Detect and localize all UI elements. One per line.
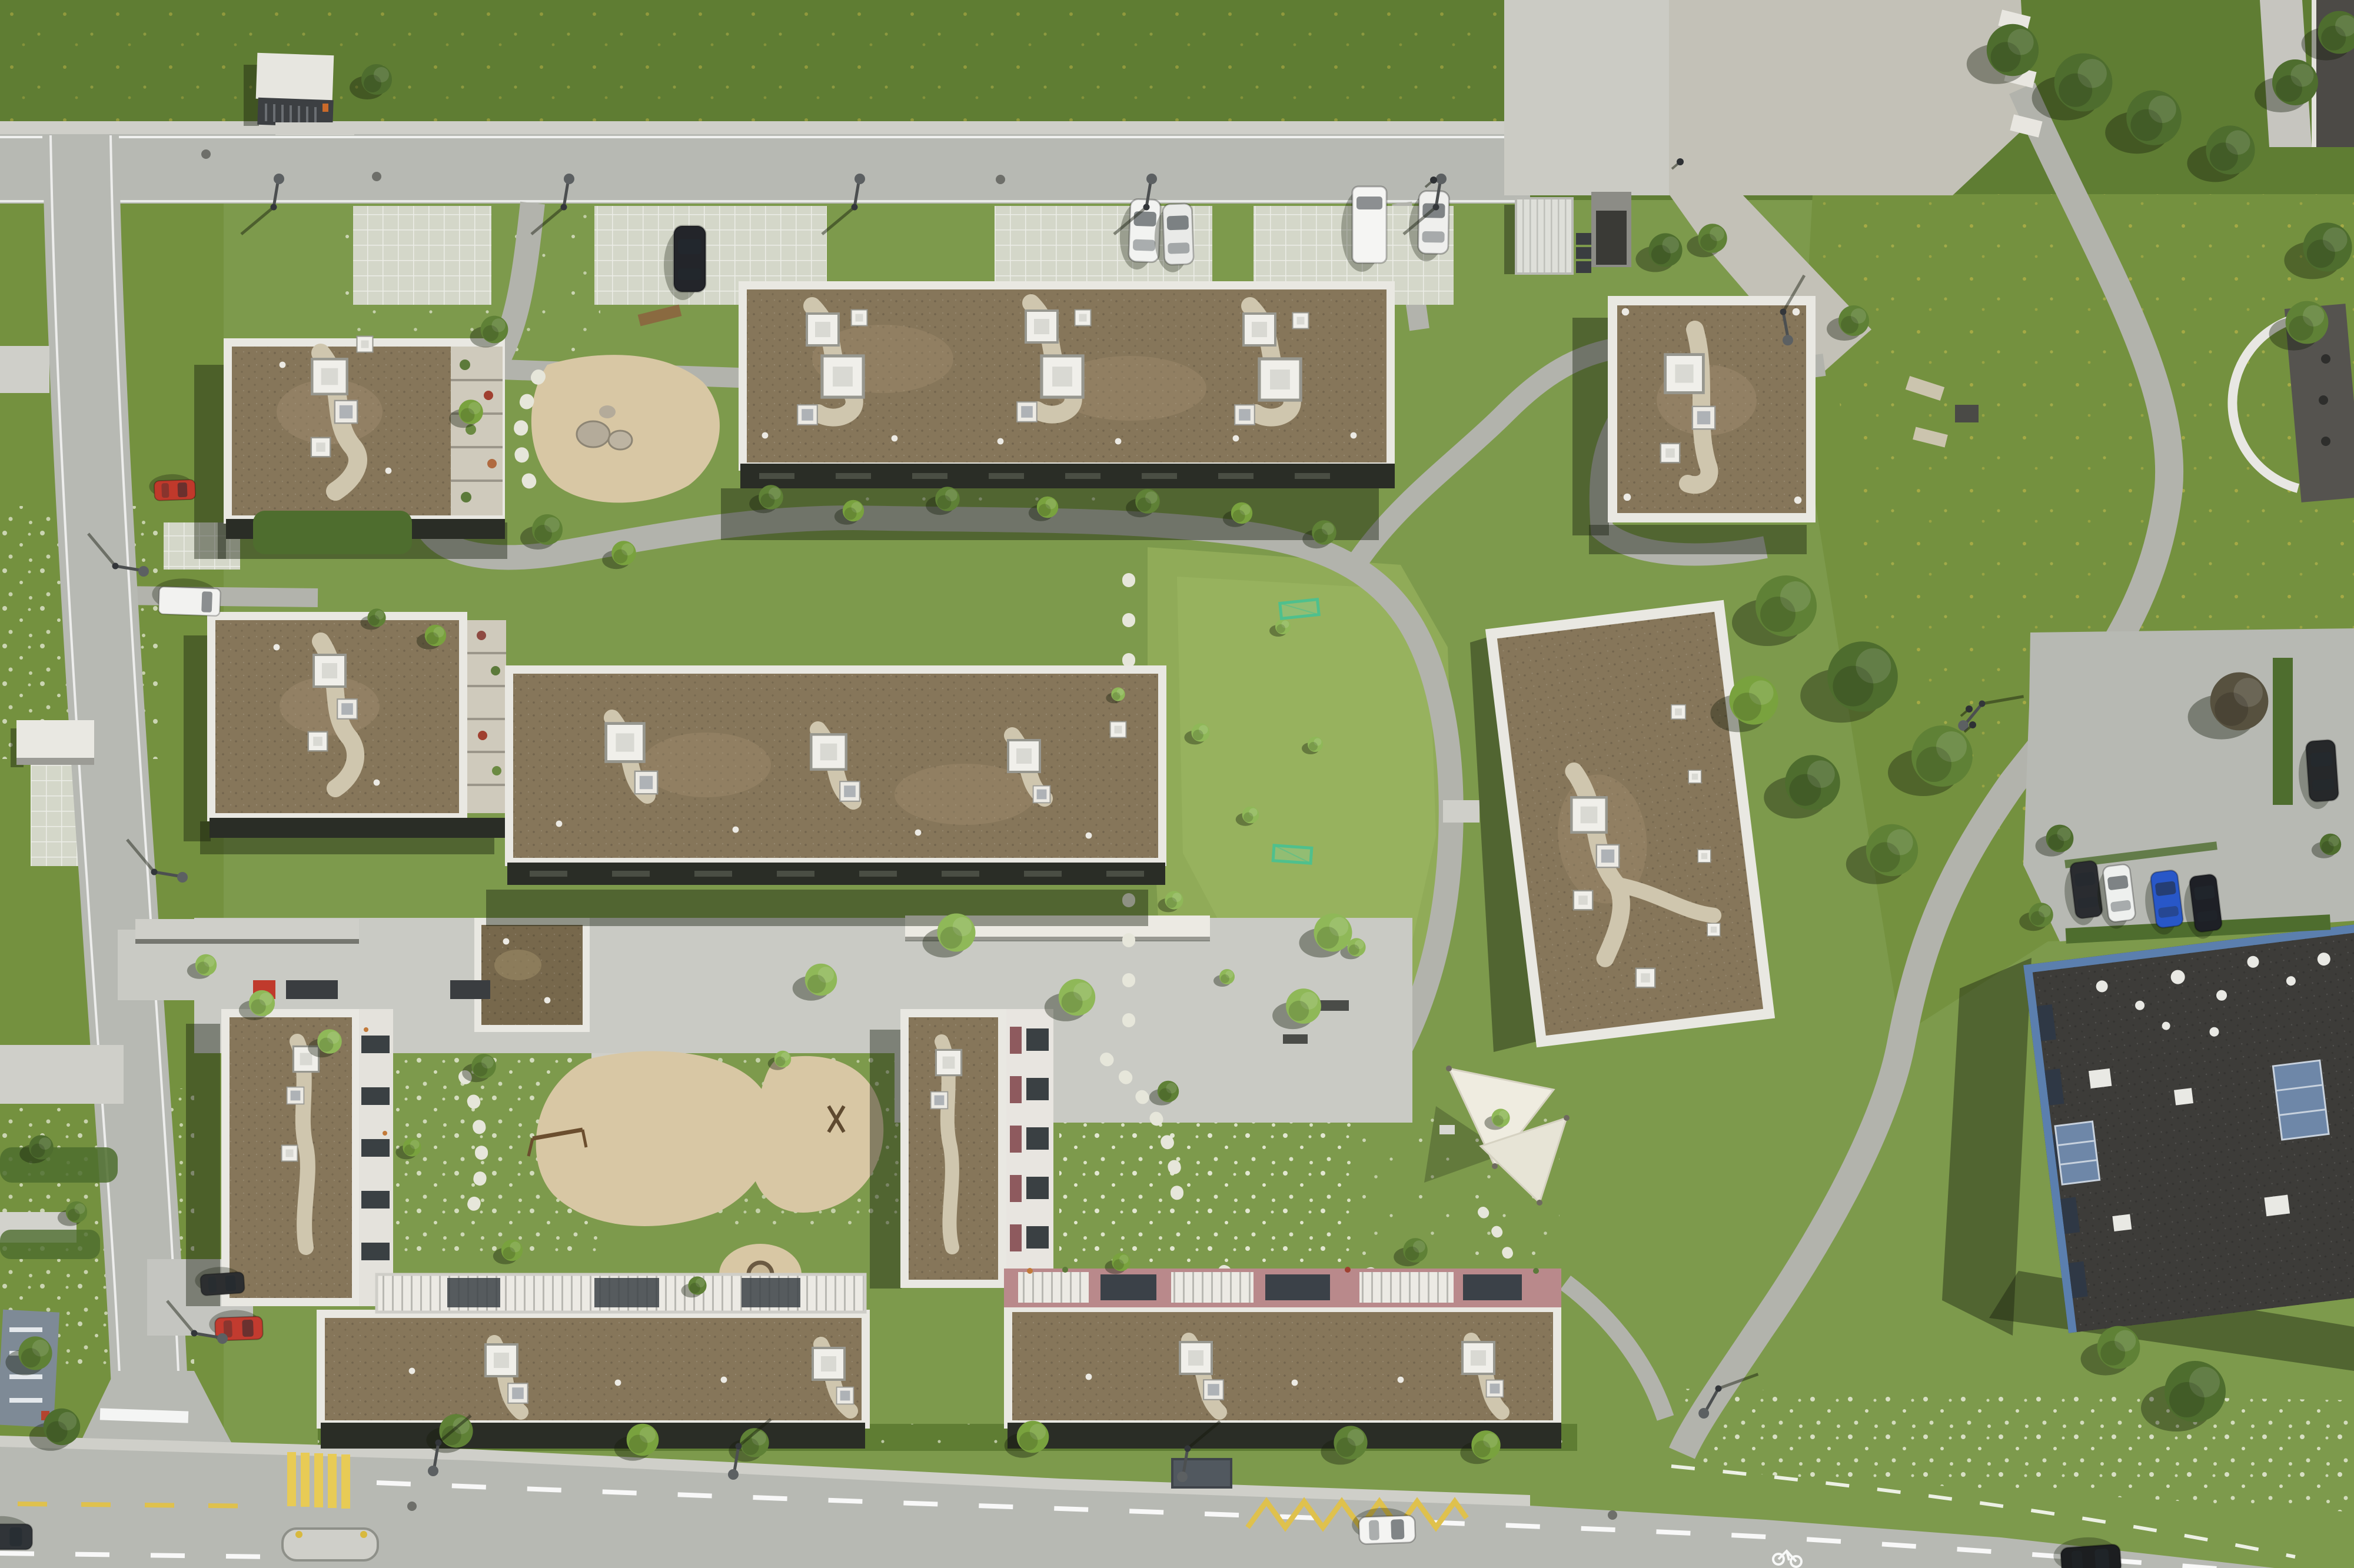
roof-skylight: [1597, 845, 1619, 867]
roof-dot: [503, 938, 510, 945]
manhole: [201, 149, 211, 159]
roof-vent-box: [357, 337, 373, 352]
roof-vent-box: [1574, 891, 1592, 910]
manhole: [372, 172, 381, 181]
bike-shed-pavilion: [474, 918, 590, 1032]
building-i-commercial: [1942, 921, 2354, 1371]
roof-dot: [762, 432, 769, 439]
toy-cart: [1439, 1125, 1455, 1134]
roof-vent-box: [1661, 444, 1680, 462]
garage-ramp: [1591, 192, 1631, 267]
aerial-photo-stage: [0, 0, 2354, 1568]
island-beacon: [295, 1531, 302, 1538]
roof-dot: [1794, 497, 1802, 504]
roof-vent-box: [1571, 797, 1606, 832]
roof-vent-box: [1698, 850, 1711, 863]
bench: [1318, 1000, 1349, 1011]
roof-skylight: [1203, 1380, 1223, 1400]
roof-dot: [1086, 1374, 1092, 1380]
roof-dot: [915, 830, 922, 836]
roof-dot: [1086, 833, 1092, 839]
sand-area-north: [531, 355, 720, 502]
roof-dot: [385, 468, 392, 474]
facade-east: [359, 1009, 393, 1306]
dark-containers: [450, 980, 490, 999]
island-beacon: [360, 1531, 367, 1538]
hedge: [2273, 658, 2293, 805]
roof-dot: [998, 438, 1004, 445]
roof-vent-box: [811, 734, 846, 769]
building-b: [184, 612, 506, 854]
neighbor-paving: [0, 1045, 124, 1104]
roof-vent-box: [606, 724, 644, 762]
manhole: [996, 175, 1005, 184]
soccer-mini-goal: [1273, 845, 1312, 863]
roof-skylight: [635, 771, 657, 794]
roof-vent-box: [822, 356, 863, 397]
roof-vent-box: [1636, 968, 1655, 987]
roof-dot: [1793, 308, 1800, 316]
solar-panels: [1463, 1274, 1522, 1300]
balcony-strip: [451, 347, 503, 515]
roof-vent-box: [1707, 923, 1720, 936]
solar-panels: [1100, 1274, 1156, 1300]
roof-vent-box: [1110, 722, 1126, 738]
roof-vent-box: [813, 1348, 844, 1380]
roof-dot: [1115, 438, 1122, 445]
facade-south: [507, 863, 1165, 885]
terrace-glazing: [594, 1278, 659, 1307]
roof-skylight: [797, 405, 817, 425]
roof-vent-box: [936, 1050, 961, 1075]
boulder: [577, 421, 610, 447]
roof-skylight: [1235, 405, 1255, 425]
roof-skylight: [1487, 1380, 1504, 1397]
facade-south: [210, 818, 506, 838]
roof-vent-box: [308, 732, 327, 751]
concrete-pad: [1443, 800, 1479, 823]
boulder: [609, 431, 632, 450]
roof-vent-box: [1671, 705, 1685, 719]
roof-dot: [274, 644, 280, 651]
meadow-top-flowers: [0, 0, 1530, 134]
roof-dot: [374, 780, 380, 786]
road-top: [0, 134, 1530, 204]
building-f: [1470, 600, 1775, 1052]
roof-vent-box: [1026, 311, 1058, 342]
roof-vent-box: [1042, 356, 1083, 397]
roof-skylight: [287, 1087, 304, 1104]
roof-dot: [280, 362, 286, 368]
roof-vent-box: [282, 1146, 298, 1161]
roof-dot: [1398, 1377, 1404, 1383]
roof-skylight: [840, 781, 860, 801]
dark-containers: [286, 980, 338, 999]
roof-dot: [721, 1377, 727, 1383]
terrace-glazing: [742, 1278, 800, 1307]
manhole: [1608, 1510, 1617, 1520]
roof-skylight: [335, 401, 357, 423]
roof-vent-box: [1688, 770, 1701, 783]
roof-vent-box: [1293, 313, 1309, 329]
roof-skylight: [508, 1383, 528, 1403]
roof-skylight: [1693, 407, 1715, 429]
parking-bay: [353, 206, 491, 305]
roof-dot: [615, 1380, 621, 1386]
roof-dot: [544, 997, 551, 1004]
side-driveway: [0, 346, 49, 393]
roof-vent-box: [314, 655, 345, 687]
soccer-mini-goal: [1280, 600, 1319, 619]
roof-skylight: [1017, 402, 1037, 422]
solar-panels: [1265, 1274, 1330, 1300]
concrete-apron: [1504, 0, 1669, 195]
roof-vent-box: [1259, 359, 1301, 400]
aerial-photo: [0, 0, 2354, 1568]
roof-skylight: [837, 1387, 854, 1404]
roof-vent-box: [486, 1344, 517, 1376]
roof-skylight: [337, 699, 357, 719]
roof-dot: [556, 821, 563, 827]
roof-vent-box: [1075, 310, 1091, 326]
roof-vent-box: [1180, 1342, 1212, 1374]
roof-vent-box: [807, 314, 839, 345]
roof-skylight: [1033, 786, 1050, 803]
roof-dot: [1622, 308, 1630, 316]
manhole: [407, 1502, 417, 1511]
roof-vent-box: [1665, 355, 1704, 393]
planter-shadow: [135, 939, 359, 944]
bench: [1283, 1034, 1308, 1044]
facade-south: [321, 1423, 865, 1449]
roof-vent-box: [312, 359, 347, 394]
roof-dot: [1292, 1380, 1298, 1386]
roof-vent-box: [1008, 740, 1040, 772]
terrace-glazing: [447, 1278, 500, 1307]
roof-skylight: [931, 1092, 948, 1109]
roof-vent-box: [311, 438, 330, 457]
utility-box-left: [11, 720, 94, 767]
roof-dot: [733, 827, 739, 833]
roof-dot: [1233, 435, 1239, 442]
roof-dot: [1624, 494, 1631, 501]
roof-vent-box: [852, 310, 867, 326]
g-horizontal-wing: [317, 1274, 870, 1449]
boulder: [599, 405, 616, 418]
central-lawn-light: [1177, 577, 1436, 953]
roof-dot: [409, 1368, 415, 1374]
h-vertical-wing: [900, 1009, 1053, 1288]
roof-dot: [892, 435, 898, 442]
roof-vent-box: [1244, 314, 1275, 345]
roof-dot: [1351, 432, 1357, 439]
roof-vent-box: [1462, 1342, 1494, 1374]
